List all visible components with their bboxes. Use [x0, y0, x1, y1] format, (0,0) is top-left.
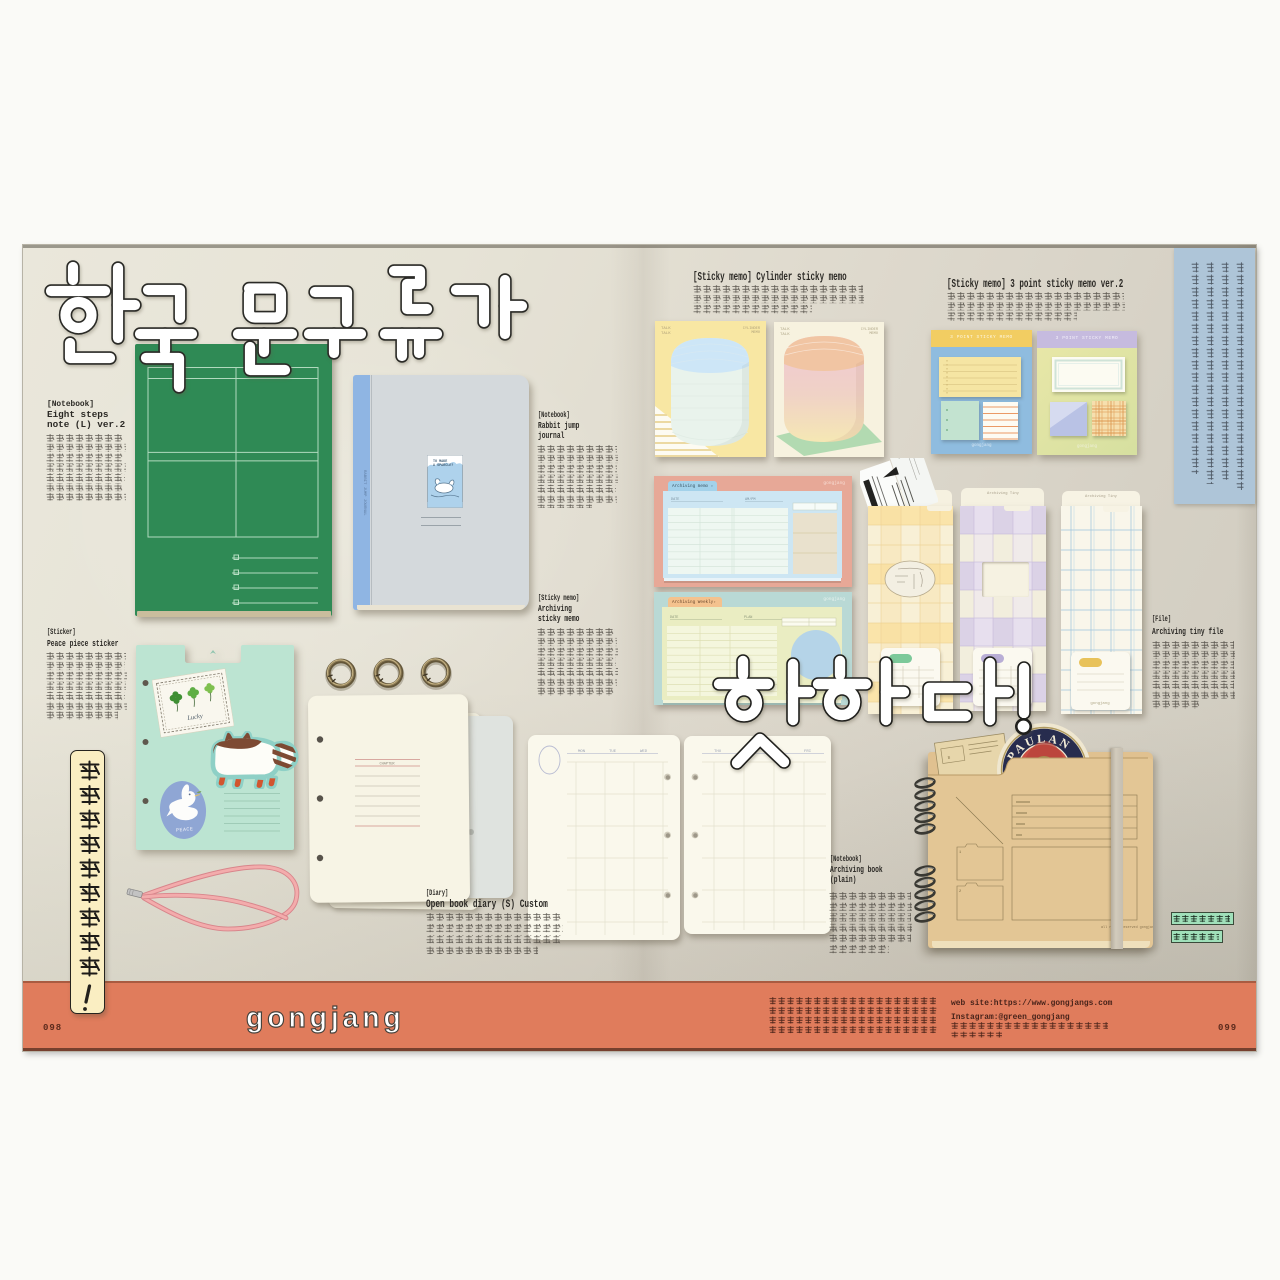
svg-text:2: 2 — [959, 890, 961, 894]
svg-text:TUE: TUE — [609, 750, 617, 754]
svg-text:CHAPTER: CHAPTER — [379, 763, 395, 767]
svg-text:all right reserved gongjang: all right reserved gongjang — [1101, 925, 1153, 930]
svg-text:1: 1 — [959, 851, 961, 855]
svg-text:WED: WED — [640, 750, 648, 754]
svg-text:A SPARCLE?: A SPARCLE? — [433, 464, 453, 468]
svg-text:MON: MON — [578, 750, 586, 754]
svg-text:gongjang: gongjang — [1090, 701, 1110, 706]
